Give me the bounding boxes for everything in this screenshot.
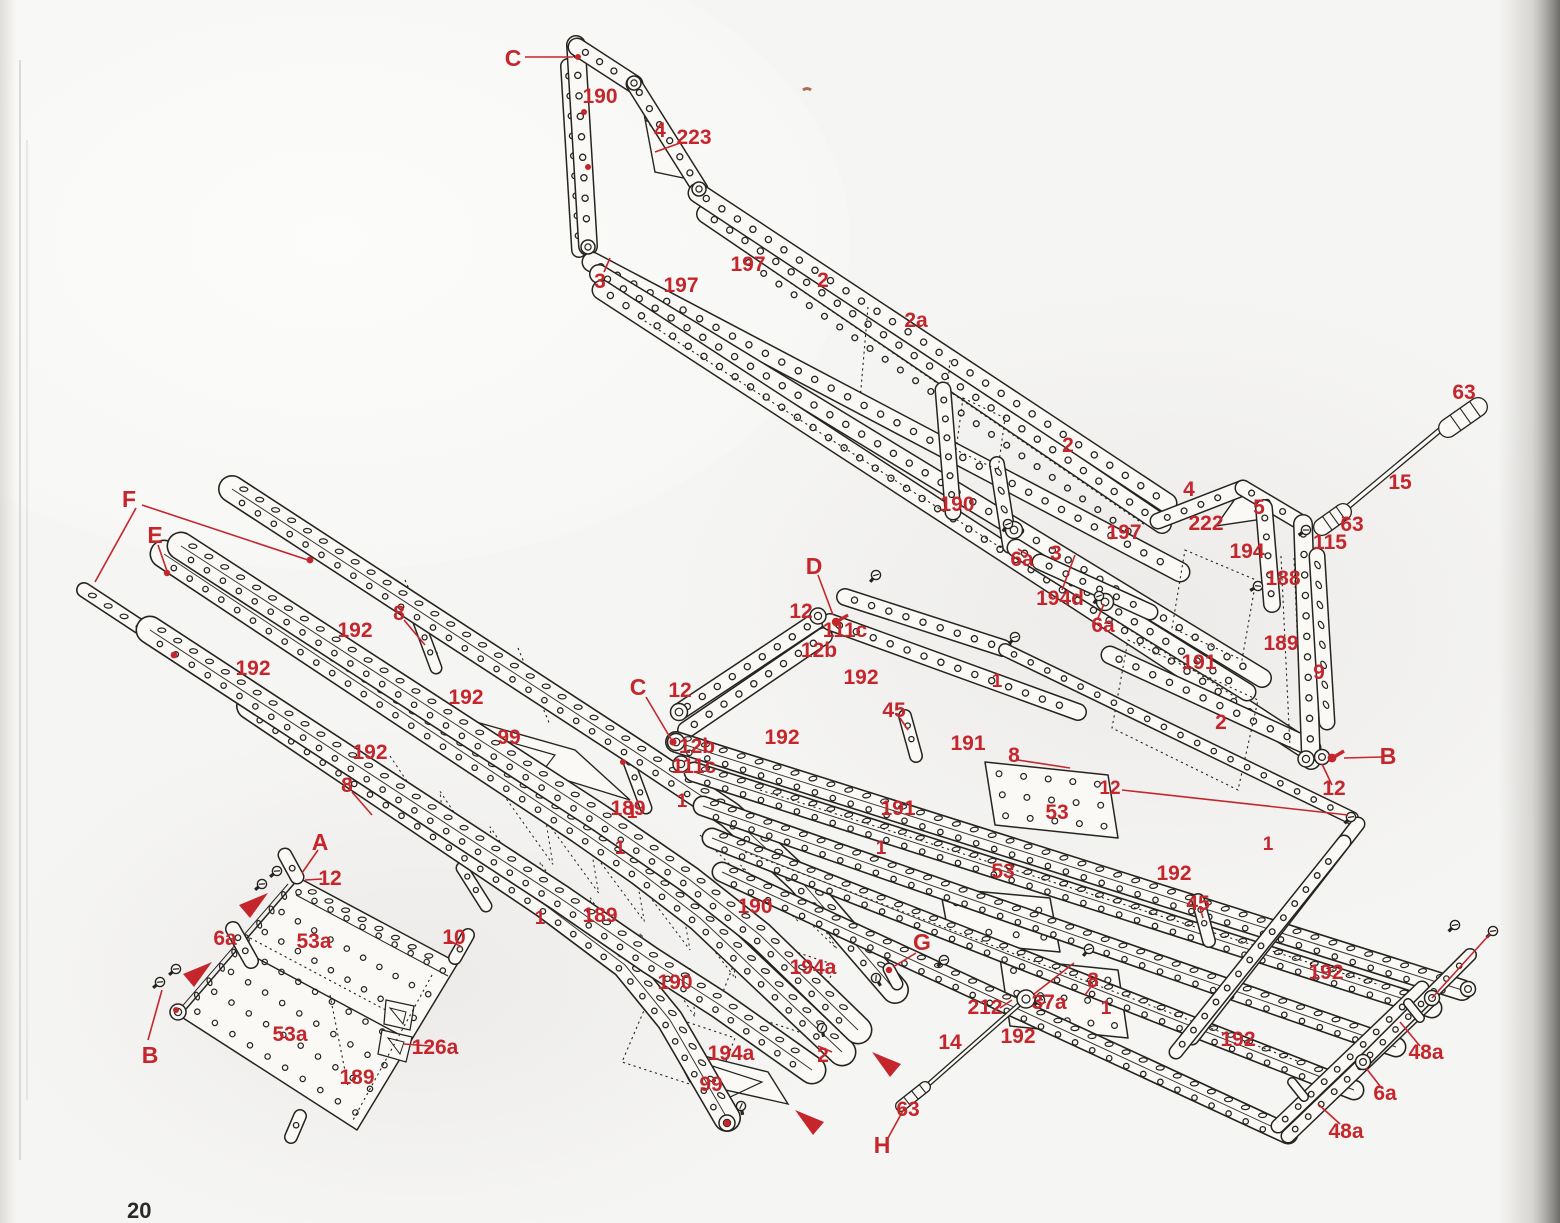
svg-text:5: 5 <box>1253 496 1265 519</box>
svg-text:192: 192 <box>843 666 878 689</box>
svg-text:1: 1 <box>677 791 688 812</box>
svg-text:192: 192 <box>337 619 372 642</box>
svg-text:99: 99 <box>699 1073 722 1096</box>
svg-text:12: 12 <box>1099 778 1120 799</box>
svg-text:45: 45 <box>882 699 906 722</box>
svg-text:189: 189 <box>1263 632 1298 655</box>
svg-text:1: 1 <box>615 838 626 859</box>
svg-text:197: 197 <box>730 253 765 276</box>
svg-text:190: 190 <box>657 971 692 994</box>
svg-text:197: 197 <box>1106 521 1141 544</box>
svg-text:1: 1 <box>535 908 546 929</box>
svg-text:48a: 48a <box>1328 1120 1363 1143</box>
svg-text:8: 8 <box>393 602 405 625</box>
svg-text:E: E <box>147 522 162 548</box>
svg-text:45: 45 <box>1186 892 1210 915</box>
svg-text:1: 1 <box>1263 834 1274 855</box>
svg-text:191: 191 <box>1181 651 1216 674</box>
svg-text:2: 2 <box>1062 434 1074 457</box>
svg-text:189: 189 <box>610 797 645 820</box>
svg-text:C: C <box>505 45 522 71</box>
svg-text:B: B <box>1380 743 1397 769</box>
svg-text:12: 12 <box>1322 777 1345 800</box>
svg-text:G: G <box>913 929 931 955</box>
svg-text:3: 3 <box>594 270 606 293</box>
svg-text:194a: 194a <box>790 956 837 979</box>
svg-text:188: 188 <box>1265 567 1300 590</box>
svg-text:A: A <box>312 829 329 855</box>
svg-text:53a: 53a <box>272 1023 307 1046</box>
svg-text:6a: 6a <box>1010 548 1034 571</box>
svg-text:12: 12 <box>789 600 812 623</box>
svg-text:10: 10 <box>442 926 465 949</box>
svg-text:12b: 12b <box>801 639 837 662</box>
svg-text:194a: 194a <box>708 1042 755 1065</box>
svg-text:12: 12 <box>668 679 691 702</box>
svg-text:15: 15 <box>1388 471 1412 494</box>
svg-text:14: 14 <box>938 1031 962 1054</box>
svg-text:2: 2 <box>817 269 829 292</box>
svg-text:192: 192 <box>448 686 483 709</box>
svg-text:53: 53 <box>1045 801 1068 824</box>
svg-text:192: 192 <box>1308 961 1343 984</box>
svg-text:9: 9 <box>1313 661 1325 684</box>
svg-text:111c: 111c <box>672 755 717 778</box>
svg-text:6a: 6a <box>213 927 237 950</box>
svg-text:6a: 6a <box>1091 614 1115 637</box>
svg-text:2a: 2a <box>904 309 928 332</box>
svg-text:197: 197 <box>663 274 698 297</box>
svg-text:F: F <box>122 486 136 512</box>
svg-text:H: H <box>874 1132 891 1158</box>
svg-text:53a: 53a <box>296 930 331 953</box>
svg-text:63: 63 <box>896 1098 919 1121</box>
svg-text:192: 192 <box>1156 862 1191 885</box>
svg-text:B: B <box>142 1042 159 1068</box>
svg-text:1: 1 <box>992 671 1003 692</box>
svg-text:12: 12 <box>318 867 341 890</box>
svg-text:212: 212 <box>967 996 1002 1019</box>
svg-text:8: 8 <box>341 774 353 797</box>
svg-text:2: 2 <box>817 1044 829 1067</box>
svg-text:192: 192 <box>235 657 270 680</box>
svg-text:222: 222 <box>1188 512 1223 535</box>
svg-text:8: 8 <box>1087 969 1099 992</box>
svg-text:191: 191 <box>880 797 915 820</box>
svg-text:C: C <box>630 674 647 700</box>
svg-text:4: 4 <box>654 119 666 142</box>
svg-text:192: 192 <box>352 741 387 764</box>
svg-text:190: 190 <box>939 493 974 516</box>
svg-text:192: 192 <box>1220 1028 1255 1051</box>
svg-text:194d: 194d <box>1036 587 1084 610</box>
svg-text:6a: 6a <box>1373 1082 1397 1105</box>
svg-text:192: 192 <box>1000 1025 1035 1048</box>
svg-text:190: 190 <box>582 85 617 108</box>
svg-text:192: 192 <box>764 726 799 749</box>
svg-text:2: 2 <box>1215 711 1227 734</box>
svg-text:223: 223 <box>676 126 711 149</box>
svg-text:63: 63 <box>1452 381 1475 404</box>
svg-text:1: 1 <box>876 838 887 859</box>
svg-text:48a: 48a <box>1408 1041 1443 1064</box>
svg-text:194: 194 <box>1229 540 1264 563</box>
svg-text:126a: 126a <box>412 1036 459 1059</box>
svg-text:190: 190 <box>737 895 772 918</box>
svg-text:1: 1 <box>1101 998 1112 1019</box>
svg-text:20: 20 <box>127 1198 151 1223</box>
svg-text:191: 191 <box>950 732 985 755</box>
svg-text:3: 3 <box>1050 542 1062 565</box>
svg-text:99: 99 <box>497 726 520 749</box>
svg-text:37a: 37a <box>1031 991 1066 1014</box>
svg-text:189: 189 <box>582 904 617 927</box>
svg-text:53: 53 <box>991 860 1014 883</box>
svg-text:8: 8 <box>1008 744 1020 767</box>
svg-text:115: 115 <box>1313 531 1347 554</box>
svg-text:D: D <box>806 553 823 579</box>
svg-text:4: 4 <box>1183 478 1195 501</box>
svg-text:189: 189 <box>339 1066 374 1089</box>
